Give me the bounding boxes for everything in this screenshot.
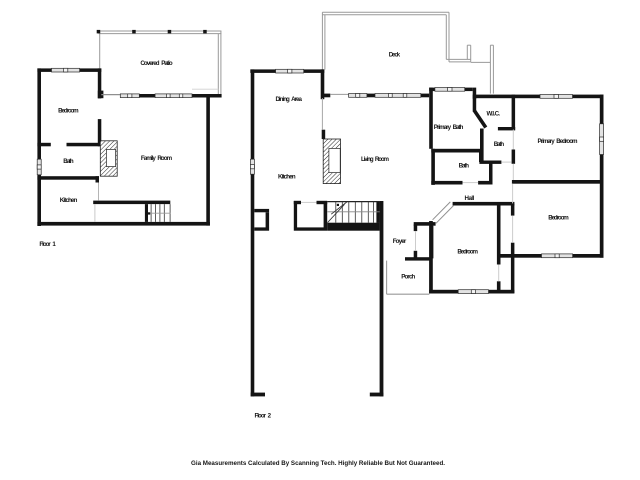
svg-text:Kitchen: Kitchen <box>278 174 296 181</box>
svg-text:Floor 1: Floor 1 <box>39 241 56 248</box>
svg-text:W.I.C.: W.I.C. <box>486 110 500 117</box>
svg-text:Living Room: Living Room <box>361 156 389 163</box>
svg-text:Family Room: Family Room <box>141 155 173 162</box>
svg-text:Porch: Porch <box>401 273 415 280</box>
svg-text:Gia Measurements Calculated By: Gia Measurements Calculated By Scanning … <box>191 460 445 467</box>
svg-text:Bedroom: Bedroom <box>548 215 569 222</box>
svg-text:Bath: Bath <box>494 141 505 148</box>
svg-text:Floor 2: Floor 2 <box>255 413 272 420</box>
svg-text:Hall: Hall <box>465 195 475 202</box>
svg-text:Bedroom: Bedroom <box>457 249 478 256</box>
svg-text:Bath: Bath <box>459 163 470 170</box>
svg-text:Bath: Bath <box>63 158 74 165</box>
svg-text:Primary Bath: Primary Bath <box>434 124 464 131</box>
svg-text:Kitchen: Kitchen <box>60 197 78 204</box>
svg-text:Deck: Deck <box>389 51 401 58</box>
svg-text:Foyer: Foyer <box>393 238 407 245</box>
svg-text:Dining Area: Dining Area <box>275 96 302 103</box>
svg-text:Primary Bedroom: Primary Bedroom <box>538 138 578 145</box>
svg-text:Covered Patio: Covered Patio <box>140 60 173 67</box>
svg-text:Bedroom: Bedroom <box>58 108 79 115</box>
